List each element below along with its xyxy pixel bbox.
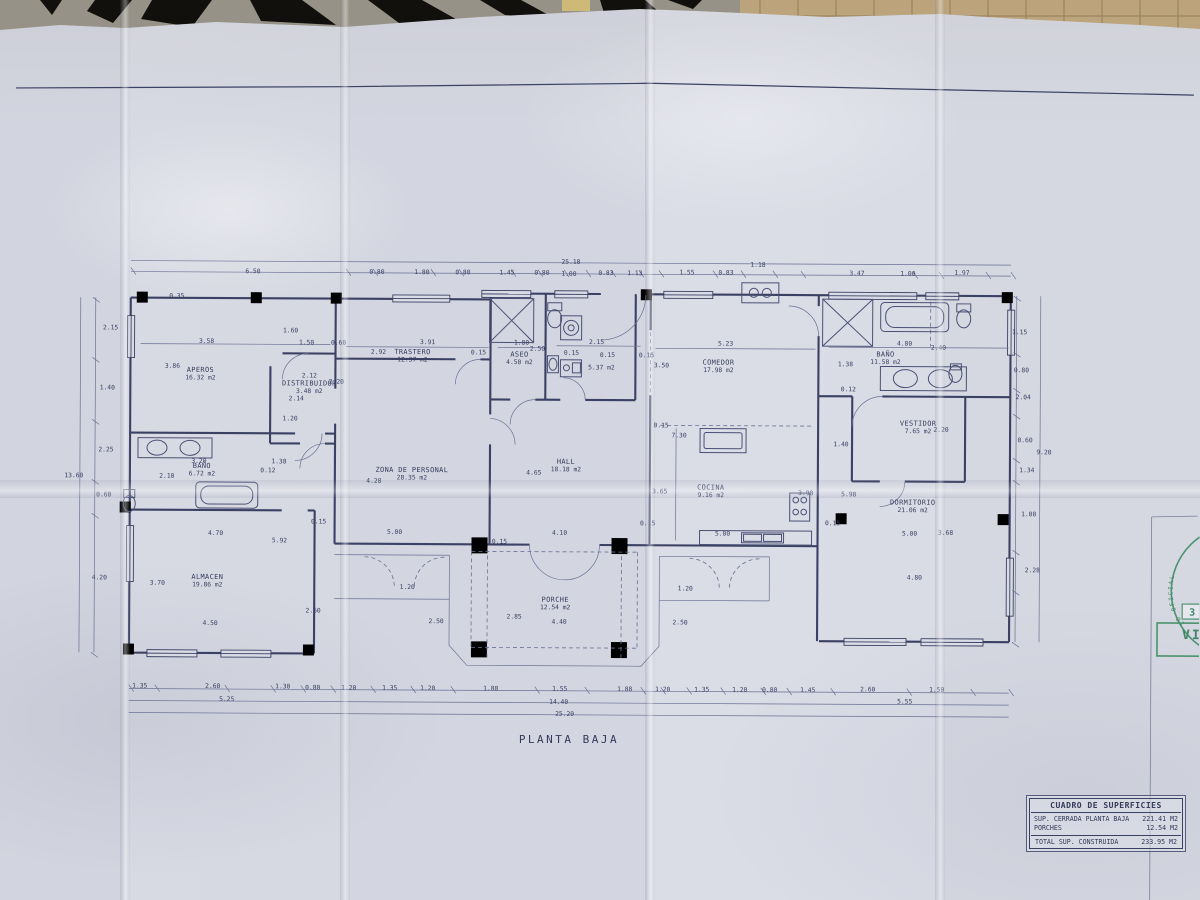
dimension-label: 1.35 bbox=[694, 686, 709, 693]
dimension-label: 1.40 bbox=[833, 441, 848, 448]
dimension-label: 0.83 bbox=[718, 270, 733, 277]
room-name-label: APEROS bbox=[187, 366, 214, 374]
dimension-label: 2.14 bbox=[289, 395, 304, 402]
dimension-label: 1.38 bbox=[838, 361, 853, 368]
dimension-label: 0.15 bbox=[492, 538, 507, 545]
dimension-label: 4.20 bbox=[92, 574, 107, 581]
dimension-label: 2.92 bbox=[371, 349, 386, 356]
dimension-label: 1.45 bbox=[499, 269, 514, 276]
dimension-label: 2.60 bbox=[205, 683, 220, 690]
dimension-label: 2.20 bbox=[934, 427, 949, 434]
dimension-label: 2.50 bbox=[428, 618, 443, 625]
dimension-label: 4.80 bbox=[907, 575, 922, 582]
dimension-label: 0.15 bbox=[639, 352, 654, 359]
row-value: 221.41 M2 bbox=[1142, 815, 1178, 823]
dimension-label: 0.80 bbox=[369, 269, 384, 276]
dimension-label: 2.28 bbox=[1025, 567, 1040, 574]
dimension-label: 5.00 bbox=[902, 531, 917, 538]
dimension-label: 0.12 bbox=[260, 467, 275, 474]
dimension-label: 3.58 bbox=[199, 338, 214, 345]
dimension-label: 4.40 bbox=[551, 619, 566, 626]
stamp-number: 3 bbox=[1189, 608, 1195, 619]
dimension-label: 5.55 bbox=[897, 699, 912, 706]
dimension-label: 1.50 bbox=[299, 339, 314, 346]
sheet-border-top bbox=[16, 80, 1194, 95]
dimension-label: 3.91 bbox=[420, 339, 435, 346]
photo-of-floor-plan: 25.186.500.801.800.801.450.801.000.831.1… bbox=[0, 0, 1200, 900]
room-area-label: 9.16 m2 bbox=[697, 492, 724, 499]
dimension-label: 13.60 bbox=[64, 472, 83, 479]
dimension-label: 5.25 bbox=[219, 696, 234, 703]
row-value: 233.95 M2 bbox=[1141, 838, 1177, 846]
dimension-label: 2.40 bbox=[931, 345, 946, 352]
dimension-label: 2.04 bbox=[1016, 394, 1031, 401]
dimension-label: 14.40 bbox=[549, 699, 568, 706]
dimension-label: 0.83 bbox=[598, 270, 613, 277]
dimension-label: 0.15 bbox=[654, 422, 669, 429]
room-area-label: 19.86 m2 bbox=[192, 581, 223, 588]
floor-plan-drawing: 25.186.500.801.800.801.450.801.000.831.1… bbox=[0, 0, 1200, 900]
dimension-label: 3.86 bbox=[165, 363, 180, 370]
room-area-label: 7.65 m2 bbox=[905, 428, 932, 435]
room-name-label: VESTIDOR bbox=[900, 420, 937, 428]
dimension-label: 3.70 bbox=[150, 580, 165, 587]
dimension-label: 1.97 bbox=[954, 270, 969, 277]
dimension-label: 3.90 bbox=[798, 490, 813, 497]
room-name-label: PORCHE bbox=[542, 596, 569, 604]
dimension-label: 5.00 bbox=[387, 529, 402, 536]
dimension-label: 0.60 bbox=[96, 491, 111, 498]
dimension-label: 0.60 bbox=[331, 340, 346, 347]
dimension-label: 1.00 bbox=[561, 271, 576, 278]
dimension-label: 6.50 bbox=[245, 268, 260, 275]
dimension-label: 1.00 bbox=[1021, 511, 1036, 518]
dimension-label: 1.80 bbox=[414, 269, 429, 276]
dimension-label: 1.55 bbox=[552, 686, 567, 693]
dimension-label: 5.92 bbox=[272, 537, 287, 544]
bath-kitchen-fixtures bbox=[123, 280, 971, 546]
dimension-label: 4.28 bbox=[366, 478, 381, 485]
areas-table-title: CUADRO DE SUPERFICIES bbox=[1031, 800, 1181, 813]
dimension-label: 1.55 bbox=[679, 269, 694, 276]
room-area-label: 4.50 m2 bbox=[506, 359, 533, 366]
dimension-label: 2.25 bbox=[98, 446, 113, 453]
room-area-label: 3.48 m2 bbox=[296, 388, 323, 395]
room-area-label: 17.98 m2 bbox=[703, 367, 734, 374]
dimension-label: 3.47 bbox=[849, 270, 864, 277]
dimension-label: 1.20 bbox=[678, 585, 693, 592]
room-name-label: BAÑO bbox=[876, 349, 894, 358]
dimension-label: 1.20 bbox=[732, 687, 747, 694]
row-value: 12.54 M2 bbox=[1146, 824, 1178, 832]
official-stamp: IO OFICIAL 3 VI bbox=[1157, 525, 1200, 658]
room-area-label: 12.54 m2 bbox=[540, 604, 571, 611]
door-arcs bbox=[281, 293, 905, 581]
dimension-label: 0.15 bbox=[600, 352, 615, 359]
table-row: PORCHES 12.54 M2 bbox=[1030, 823, 1182, 833]
room-name-label: ASEO bbox=[510, 351, 528, 359]
dimension-label: 1.30 bbox=[275, 683, 290, 690]
dimension-label: 1.34 bbox=[1019, 467, 1034, 474]
room-area-label: 6.72 m2 bbox=[189, 470, 216, 477]
room-area-label: 21.06 m2 bbox=[897, 507, 928, 514]
room-area-label: 5.37 m2 bbox=[588, 364, 615, 371]
dimension-label: 1.35 bbox=[382, 685, 397, 692]
room-name-label: DISTRIBUIDOR bbox=[282, 379, 337, 387]
row-label: SUP. CERRADA PLANTA BAJA bbox=[1034, 815, 1129, 823]
dimension-label: 1.20 bbox=[420, 685, 435, 692]
dimension-label: 4.50 bbox=[202, 620, 217, 627]
dimension-label: 0.15 bbox=[640, 520, 655, 527]
dimension-label: 0.80 bbox=[762, 687, 777, 694]
dimension-label: 9.20 bbox=[1036, 449, 1051, 456]
dimension-label: 5.98 bbox=[841, 491, 856, 498]
dimension-label: 1.88 bbox=[483, 685, 498, 692]
dimension-label: 4.70 bbox=[208, 530, 223, 537]
dimension-label: 7.30 bbox=[671, 432, 686, 439]
dimension-label: 0.35 bbox=[169, 293, 184, 300]
wall-lines bbox=[129, 292, 1011, 658]
room-name-label: COCINA bbox=[697, 484, 725, 492]
room-labels: APEROS16.32 m2DISTRIBUIDOR3.48 m2BAÑO6.7… bbox=[184, 346, 937, 613]
dimension-label: 0.80 bbox=[455, 269, 470, 276]
dimension-label: 0.80 bbox=[305, 684, 320, 691]
dimension-label: 1.60 bbox=[283, 327, 298, 334]
room-area-label: 12.37 m2 bbox=[397, 356, 428, 363]
dimension-label: 1.88 bbox=[617, 686, 632, 693]
dimension-label: 1.35 bbox=[132, 683, 147, 690]
dimension-lines bbox=[79, 260, 1041, 717]
dimension-label: 0.15 bbox=[311, 518, 326, 525]
dimension-label: 0.80 bbox=[534, 270, 549, 277]
dimension-label: 4.10 bbox=[552, 530, 567, 537]
table-row: SUP. CERRADA PLANTA BAJA 221.41 M2 bbox=[1030, 813, 1182, 823]
dimension-label: 1.13 bbox=[627, 270, 642, 277]
room-name-label: TRASTERO bbox=[394, 348, 430, 356]
dimension-label: 5.23 bbox=[718, 341, 733, 348]
row-label: TOTAL SUP. CONSTRUIDA bbox=[1035, 838, 1118, 846]
dimension-label: 3.50 bbox=[654, 362, 669, 369]
dimension-label: 0.15 bbox=[825, 520, 840, 527]
room-area-label: 11.58 m2 bbox=[870, 359, 901, 366]
dimension-label: 1.50 bbox=[929, 687, 944, 694]
room-name-label: ALMACEN bbox=[191, 573, 223, 581]
room-name-label: HALL bbox=[557, 458, 575, 466]
table-row-total: TOTAL SUP. CONSTRUIDA 233.95 M2 bbox=[1031, 835, 1181, 846]
dimension-label: 25.18 bbox=[561, 259, 580, 266]
room-area-label: 28.35 m2 bbox=[397, 474, 428, 481]
room-name-label: DORMITORIO bbox=[890, 499, 936, 507]
dimension-label: 0.80 bbox=[1014, 367, 1029, 374]
areas-table: CUADRO DE SUPERFICIES SUP. CERRADA PLANT… bbox=[1026, 795, 1186, 852]
stamp-letters: VI bbox=[1182, 628, 1200, 643]
dimension-labels: 25.186.500.801.800.801.450.801.000.831.1… bbox=[63, 256, 1053, 720]
title-block-top bbox=[1152, 516, 1198, 517]
dimension-label: 25.20 bbox=[555, 711, 574, 718]
dimension-label: 1.20 bbox=[400, 584, 415, 591]
dimension-label: 1.20 bbox=[655, 686, 670, 693]
room-name-label: BAÑO bbox=[193, 461, 211, 470]
dimension-label: 1.40 bbox=[100, 384, 115, 391]
dimension-label: 2.60 bbox=[306, 607, 321, 614]
dimension-label: 3.68 bbox=[938, 530, 953, 537]
dimension-label: 1.38 bbox=[271, 458, 286, 465]
dimension-label: 4.80 bbox=[897, 341, 912, 348]
dimension-label: 2.60 bbox=[860, 686, 875, 693]
room-name-label: COMEDOR bbox=[703, 359, 735, 367]
dimension-label: 2.15 bbox=[589, 339, 604, 346]
dimension-label: 1.15 bbox=[1012, 329, 1027, 336]
dimension-label: 2.10 bbox=[159, 473, 174, 480]
room-area-label: 18.18 m2 bbox=[551, 466, 582, 473]
dimension-label: 1.00 bbox=[900, 271, 915, 278]
dimension-label: 2.50 bbox=[672, 619, 687, 626]
dimension-label: 2.15 bbox=[103, 324, 118, 331]
plan-title: PLANTA BAJA bbox=[503, 733, 635, 746]
dimension-label: 0.15 bbox=[471, 349, 486, 356]
dimension-label: 3.65 bbox=[652, 488, 667, 495]
dimension-label: 4.65 bbox=[526, 470, 541, 477]
dimension-label: 1.18 bbox=[750, 262, 765, 269]
dimension-label: 0.12 bbox=[841, 386, 856, 393]
dimension-label: 2.50 bbox=[530, 346, 545, 353]
dimension-label: 1.20 bbox=[283, 415, 298, 422]
dimension-label: 5.00 bbox=[715, 531, 730, 538]
room-area-label: 16.32 m2 bbox=[185, 374, 216, 381]
dimension-label: 1.80 bbox=[514, 340, 529, 347]
dimension-label: 0.60 bbox=[1017, 437, 1032, 444]
row-label: PORCHES bbox=[1034, 824, 1062, 832]
room-name-label: ZONA DE PERSONAL bbox=[375, 466, 448, 474]
dimension-label: 1.45 bbox=[800, 687, 815, 694]
dimension-label: 1.20 bbox=[341, 685, 356, 692]
dimension-label: 2.85 bbox=[507, 614, 522, 621]
dimension-label: 0.15 bbox=[564, 350, 579, 357]
